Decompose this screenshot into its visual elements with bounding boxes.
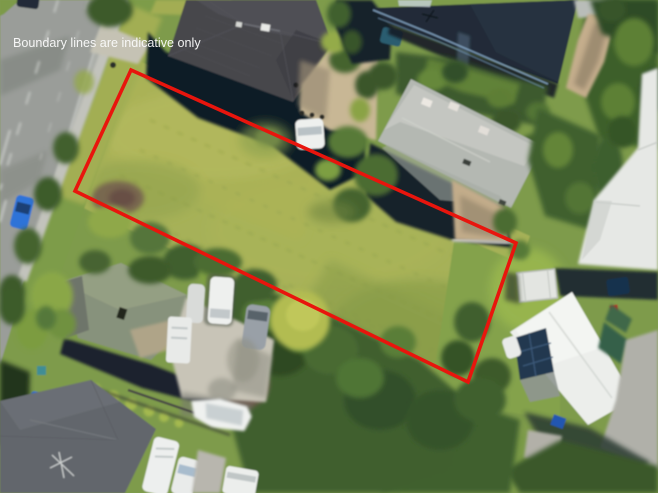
svg-text:Boundary lines are indicative: Boundary lines are indicative only [13,36,201,50]
